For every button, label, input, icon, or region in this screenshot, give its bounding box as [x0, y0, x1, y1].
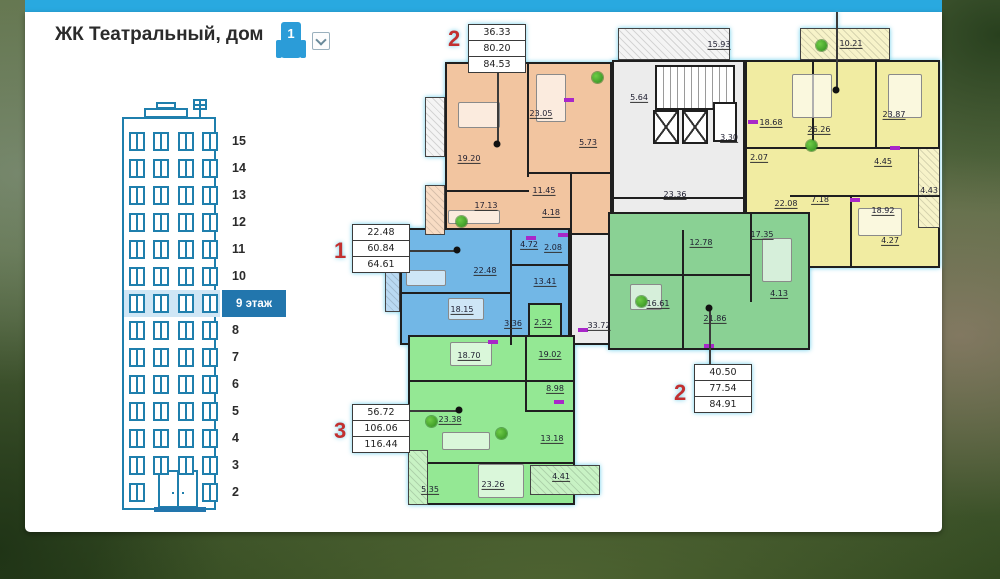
window-icon	[129, 321, 145, 340]
antenna-icon	[193, 99, 207, 110]
window-icon	[178, 132, 194, 151]
floor-number-13[interactable]: 13	[232, 188, 272, 203]
top-blue-bar	[25, 0, 942, 12]
plant-icon	[806, 140, 817, 151]
unit-areas-table: 56.72106.06116.44	[352, 404, 410, 453]
window-icon	[202, 213, 218, 232]
balcony-orange-left	[425, 185, 445, 235]
unit-area-value: 60.84	[353, 241, 409, 257]
window-icon	[153, 402, 169, 421]
utility-shaft	[425, 97, 445, 157]
interior-wall	[875, 60, 877, 147]
window-icon	[202, 375, 218, 394]
unit-area-value: 116.44	[353, 437, 409, 452]
interior-wall	[400, 292, 512, 294]
window-icon	[202, 159, 218, 178]
building-number: 1	[281, 26, 301, 41]
interior-wall	[745, 147, 940, 149]
floor-plan: 23.0519.2017.1311.454.185.7315.935.643.3…	[330, 12, 942, 532]
interior-wall	[525, 335, 527, 412]
entrance-door-icon	[158, 470, 198, 508]
room-area-label: 2.07	[750, 153, 768, 163]
room-area-label: 5.73	[579, 138, 597, 148]
unit-area-value: 64.61	[353, 257, 409, 272]
floor-number-14[interactable]: 14	[232, 161, 272, 176]
unit-number-label: 2	[674, 380, 686, 406]
window-icon	[153, 240, 169, 259]
page: ЖК Театральный, дом 1	[0, 0, 1000, 579]
window-icon	[153, 375, 169, 394]
plant-icon	[426, 416, 437, 427]
plant-icon	[592, 72, 603, 83]
dimension-marker	[748, 120, 758, 124]
callout-dot	[454, 247, 461, 254]
unit-areas-table: 36.3380.2084.53	[468, 24, 526, 73]
floor-number-8[interactable]: 8	[232, 323, 272, 338]
window-icon	[202, 483, 218, 502]
room-area-label: 11.45	[533, 186, 556, 196]
window-icon	[178, 294, 194, 313]
window-icon	[153, 321, 169, 340]
room-area-label: 4.72	[520, 240, 538, 250]
unit-number-label: 1	[334, 238, 346, 264]
room-area-label: 16.61	[647, 299, 670, 309]
unit-area-value: 36.33	[469, 25, 525, 41]
unit-number-label: 3	[334, 418, 346, 444]
unit-area-value: 106.06	[353, 421, 409, 437]
window-icon	[202, 267, 218, 286]
furniture	[406, 270, 446, 286]
interior-wall	[682, 274, 752, 276]
window-icon	[178, 186, 194, 205]
window-icon	[129, 294, 145, 313]
room-area-label: 4.41	[552, 472, 570, 482]
window-icon	[178, 375, 194, 394]
room-area-label: 18.15	[451, 305, 474, 315]
interior-wall	[510, 264, 572, 266]
selected-floor-badge[interactable]: 9 этаж	[222, 290, 286, 317]
room-area-label: 21.86	[704, 314, 727, 324]
window-icon	[153, 159, 169, 178]
door-handle	[182, 492, 184, 494]
elevator-shaft	[653, 110, 679, 144]
room-area-label: 5.64	[630, 93, 648, 103]
room-area-label: 15.93	[708, 40, 731, 50]
window-icon	[129, 402, 145, 421]
room-area-label: 23.38	[439, 415, 462, 425]
room-area-label: 3.30	[720, 133, 738, 143]
unit-areas-table: 22.4860.8464.61	[352, 224, 410, 273]
floor-number-10[interactable]: 10	[232, 269, 272, 284]
unit-area-value: 84.53	[469, 57, 525, 72]
room-area-label: 18.70	[458, 351, 481, 361]
window-icon	[153, 213, 169, 232]
window-icon	[153, 267, 169, 286]
callout-leader-line	[410, 250, 457, 252]
chevron-down-icon	[315, 34, 326, 45]
interior-wall	[570, 174, 572, 235]
room-area-label: 4.18	[542, 208, 560, 218]
dimension-marker	[558, 233, 568, 237]
building-icon-wing	[300, 40, 306, 58]
plant-icon	[456, 216, 467, 227]
unit-area-value: 22.48	[353, 225, 409, 241]
room-area-label: 4.43	[920, 186, 938, 196]
room-area-label: 5.35	[421, 485, 439, 495]
window-icon	[178, 429, 194, 448]
room-area-label: 12.78	[690, 238, 713, 248]
floor-number-3[interactable]: 3	[232, 458, 272, 473]
unit-area-value: 40.50	[695, 365, 751, 381]
dimension-marker	[578, 328, 588, 332]
interior-wall	[527, 62, 529, 177]
unit-number-label: 2	[448, 26, 460, 52]
plant-icon	[636, 296, 647, 307]
dimension-marker	[554, 400, 564, 404]
window-icon	[178, 402, 194, 421]
window-icon	[153, 294, 169, 313]
entrance-sill	[154, 507, 206, 512]
interior-wall	[608, 274, 684, 276]
window-icon	[129, 240, 145, 259]
window-icon	[129, 348, 145, 367]
callout-leader-line	[497, 71, 499, 144]
window-icon	[129, 267, 145, 286]
unit-areas-table: 40.5077.5484.91	[694, 364, 752, 413]
room-area-label: 4.27	[881, 236, 899, 246]
window-icon	[129, 456, 145, 475]
balcony-green-left	[408, 450, 428, 505]
window-icon	[202, 456, 218, 475]
floor-number-5[interactable]: 5	[232, 404, 272, 419]
window-icon	[178, 213, 194, 232]
room-area-label: 18.68	[760, 118, 783, 128]
building-icon-wing	[276, 40, 282, 58]
floor-number-7[interactable]: 7	[232, 350, 272, 365]
window-icon	[153, 429, 169, 448]
room-area-label: 22.48	[474, 266, 497, 276]
room-area-label: 2.08	[544, 243, 562, 253]
window-icon	[202, 186, 218, 205]
window-icon	[129, 132, 145, 151]
room-area-label: 2.52	[534, 318, 552, 328]
floor-number-12[interactable]: 12	[232, 215, 272, 230]
dimension-marker	[564, 98, 574, 102]
room-area-label: 4.45	[874, 157, 892, 167]
room-area-label: 13.41	[534, 277, 557, 287]
plant-icon	[816, 40, 827, 51]
window-icon	[129, 186, 145, 205]
room-area-label: 22.08	[775, 199, 798, 209]
floor-number-4[interactable]: 4	[232, 431, 272, 446]
room-area-label: 26.26	[808, 125, 831, 135]
room-area-label: 10.21	[840, 39, 863, 49]
floor-number-6[interactable]: 6	[232, 377, 272, 392]
dimension-marker	[488, 340, 498, 344]
callout-dot	[494, 141, 501, 148]
room-area-label: 23.87	[883, 110, 906, 120]
window-icon	[153, 132, 169, 151]
building-icon: 1	[276, 22, 306, 60]
window-icon	[202, 321, 218, 340]
window-icon	[202, 402, 218, 421]
room-area-label: 18.92	[872, 206, 895, 216]
dimension-marker	[890, 146, 900, 150]
interior-wall	[750, 212, 752, 302]
room-area-label: 17.35	[751, 230, 774, 240]
window-icon	[202, 294, 218, 313]
window-icon	[153, 348, 169, 367]
room-area-label: 17.13	[475, 201, 498, 211]
callout-leader-line	[410, 410, 459, 412]
unit-area-value: 80.20	[469, 41, 525, 57]
room-area-label: 19.20	[458, 154, 481, 164]
window-icon	[178, 159, 194, 178]
furniture	[442, 432, 490, 450]
window-icon	[202, 348, 218, 367]
callout-leader-line	[836, 12, 838, 90]
door-handle	[172, 492, 174, 494]
roof-detail	[144, 108, 188, 118]
callout-dot	[706, 305, 713, 312]
furniture	[458, 102, 500, 128]
unit-area-value: 77.54	[695, 381, 751, 397]
building-dropdown-button[interactable]	[312, 32, 330, 50]
window-icon	[178, 267, 194, 286]
floor-number-2[interactable]: 2	[232, 485, 272, 500]
interior-wall	[525, 410, 575, 412]
balcony-blue-left	[385, 268, 400, 312]
window-icon	[129, 375, 145, 394]
window-icon	[178, 456, 194, 475]
window-icon	[153, 456, 169, 475]
room-area-label: 4.13	[770, 289, 788, 299]
room-area-label: 23.26	[482, 480, 505, 490]
window-icon	[202, 132, 218, 151]
room-area-label: 3.36	[504, 319, 522, 329]
window-icon	[178, 321, 194, 340]
elevator-shaft	[682, 110, 708, 144]
window-icon	[178, 240, 194, 259]
floor-number-15[interactable]: 15	[232, 134, 272, 149]
furniture	[762, 238, 792, 282]
window-icon	[178, 348, 194, 367]
callout-dot	[456, 407, 463, 414]
room-area-label: 13.18	[541, 434, 564, 444]
window-icon	[129, 213, 145, 232]
room-area-label: 33.72	[588, 321, 611, 331]
furniture	[792, 74, 832, 118]
interior-wall	[445, 190, 529, 192]
room-area-label: 19.02	[539, 350, 562, 360]
page-title: ЖК Театральный, дом	[55, 24, 263, 46]
interior-wall	[408, 380, 575, 382]
room-area-label: 8.98	[546, 384, 564, 394]
interior-wall	[850, 195, 852, 268]
floor-number-11[interactable]: 11	[232, 242, 272, 257]
window-icon	[202, 429, 218, 448]
room-area-label: 23.36	[664, 190, 687, 200]
room-area-label: 7.18	[811, 195, 829, 205]
callout-leader-line	[709, 308, 711, 364]
window-icon	[153, 186, 169, 205]
dimension-marker	[850, 198, 860, 202]
window-icon	[129, 159, 145, 178]
interior-wall	[682, 230, 684, 350]
plant-icon	[496, 428, 507, 439]
window-icon	[129, 429, 145, 448]
roof-detail	[156, 102, 176, 109]
callout-dot	[833, 87, 840, 94]
unit-area-value: 84.91	[695, 397, 751, 412]
room-area-label: 23.05	[530, 109, 553, 119]
unit-area-value: 56.72	[353, 405, 409, 421]
window-icon	[129, 483, 145, 502]
window-icon	[202, 240, 218, 259]
